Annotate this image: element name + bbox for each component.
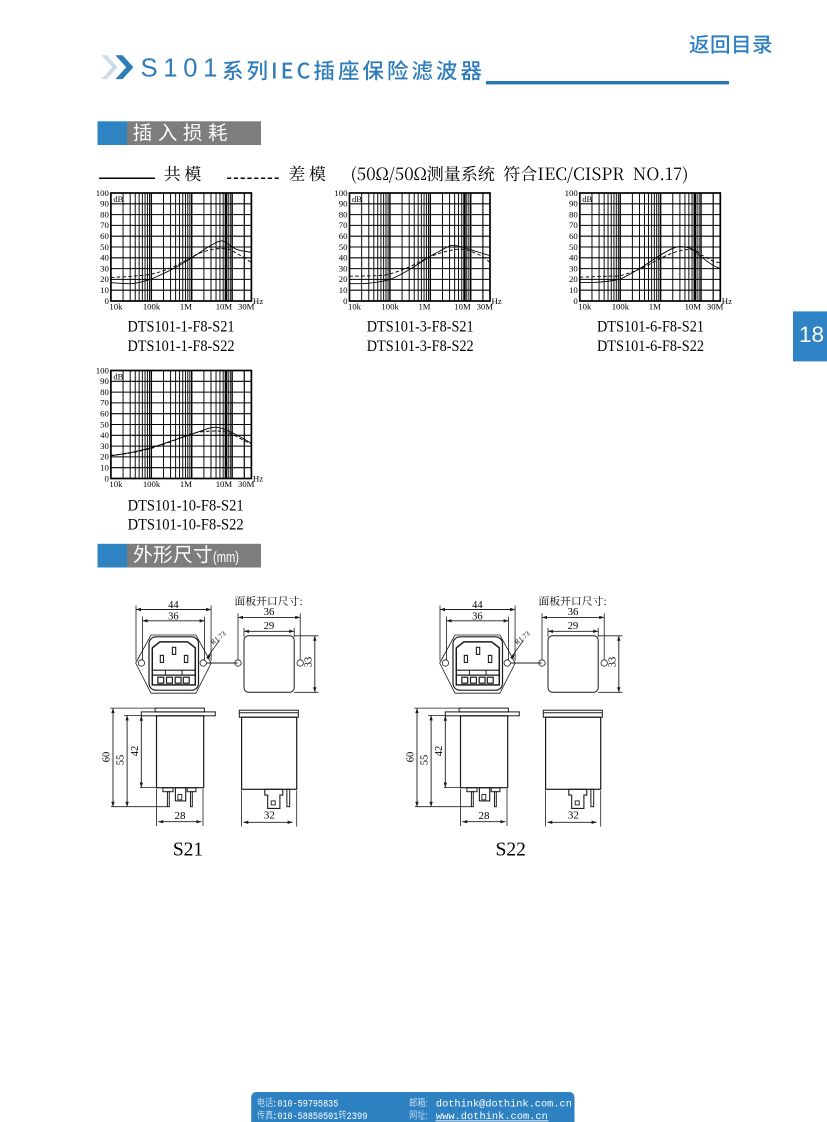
svg-text:10: 10 [339,285,348,295]
svg-text:32: 32 [264,809,275,821]
svg-text:29: 29 [264,621,275,632]
svg-text:100k: 100k [612,302,630,312]
svg-text:1M: 1M [180,479,192,489]
svg-text:(mm): (mm) [213,549,239,566]
svg-text:10M: 10M [454,302,471,312]
svg-text:44: 44 [472,600,483,611]
svg-text:10M: 10M [216,479,233,489]
svg-text:60: 60 [406,752,417,763]
svg-text:DTS101-1-F8-S22: DTS101-1-F8-S22 [128,338,235,355]
svg-text:dB: dB [113,194,123,204]
svg-text:20: 20 [100,274,109,284]
svg-text:42: 42 [130,746,141,757]
svg-text:18: 18 [799,322,824,347]
svg-text:20: 20 [569,274,578,284]
svg-text:20: 20 [339,274,348,284]
svg-text:80: 80 [100,387,109,397]
svg-text:S22: S22 [496,840,526,861]
svg-text:100k: 100k [381,302,399,312]
svg-text:50: 50 [339,242,348,252]
svg-text:DTS101-6-F8-S21: DTS101-6-F8-S21 [597,319,704,336]
svg-text:40: 40 [100,430,109,440]
svg-text:80: 80 [100,209,109,219]
svg-text:30: 30 [100,441,109,451]
svg-text:30: 30 [100,263,109,273]
svg-text:30: 30 [339,263,348,273]
svg-text:1M: 1M [418,302,430,312]
svg-text:90: 90 [339,199,348,209]
svg-text:DTS101-10-F8-S21: DTS101-10-F8-S21 [128,498,244,515]
svg-text:36: 36 [264,607,275,618]
svg-text:36: 36 [472,611,483,622]
svg-text:36: 36 [568,607,579,618]
svg-text:10k: 10k [348,302,362,312]
svg-text:10: 10 [100,285,109,295]
svg-text:10: 10 [569,285,578,295]
svg-text:Hz: Hz [492,296,502,306]
svg-text:10M: 10M [685,302,702,312]
svg-text:90: 90 [100,376,109,386]
svg-text:28: 28 [175,810,187,822]
svg-text:60: 60 [100,409,109,419]
svg-text:10k: 10k [578,302,592,312]
svg-text:R1.73: R1.73 [513,629,532,646]
svg-text:70: 70 [339,220,348,230]
svg-text:30: 30 [569,263,578,273]
svg-text:70: 70 [569,220,578,230]
svg-text:dB: dB [582,194,592,204]
svg-text:50: 50 [569,242,578,252]
svg-text:DTS101-1-F8-S21: DTS101-1-F8-S21 [128,319,235,336]
svg-text:Hz: Hz [253,474,263,484]
svg-text:55: 55 [116,755,127,766]
svg-text:10k: 10k [109,479,123,489]
svg-text:DTS101-6-F8-S22: DTS101-6-F8-S22 [597,338,704,355]
svg-text:80: 80 [339,209,348,219]
svg-text:60: 60 [569,231,578,241]
svg-text:www.dothink.com.cn: www.dothink.com.cn [436,1111,548,1122]
svg-text:33: 33 [608,657,619,668]
svg-text:60: 60 [102,752,113,763]
svg-text:90: 90 [569,199,578,209]
svg-text:100: 100 [96,365,110,375]
svg-text:40: 40 [339,253,348,263]
svg-text:dB: dB [113,372,123,382]
svg-text::010-58850501: :010-58850501 [272,1112,338,1122]
svg-text:42: 42 [434,746,445,757]
svg-text:90: 90 [100,199,109,209]
svg-text:33: 33 [304,657,315,668]
svg-text:40: 40 [569,253,578,263]
svg-text:2399: 2399 [347,1112,368,1122]
svg-text:DTS101-3-F8-S22: DTS101-3-F8-S22 [367,338,474,355]
svg-text:dB: dB [352,194,362,204]
svg-text:R1.73: R1.73 [209,629,228,646]
svg-text:40: 40 [100,253,109,263]
svg-text:100: 100 [565,188,579,198]
svg-text:100: 100 [96,188,110,198]
svg-text:28: 28 [479,810,491,822]
svg-text:dothink@dothink.com.cn: dothink@dothink.com.cn [436,1098,572,1110]
svg-text:S21: S21 [173,840,203,861]
svg-text:70: 70 [100,220,109,230]
svg-text:1M: 1M [180,302,192,312]
svg-text:29: 29 [568,621,579,632]
svg-text:100k: 100k [143,479,161,489]
svg-text:70: 70 [100,398,109,408]
svg-text:80: 80 [569,209,578,219]
svg-text:20: 20 [100,452,109,462]
svg-text:50: 50 [100,419,109,429]
svg-text:Hz: Hz [253,296,263,306]
svg-text:10k: 10k [109,302,123,312]
svg-text:55: 55 [420,755,431,766]
svg-text:100: 100 [334,188,348,198]
svg-text:10M: 10M [216,302,233,312]
svg-text:100k: 100k [143,302,161,312]
svg-text:1M: 1M [649,302,661,312]
svg-text:36: 36 [168,611,179,622]
svg-text:60: 60 [339,231,348,241]
svg-text:10: 10 [100,463,109,473]
svg-text:Hz: Hz [722,296,732,306]
svg-text:DTS101-3-F8-S21: DTS101-3-F8-S21 [367,319,474,336]
svg-text:60: 60 [100,231,109,241]
svg-text::010-59795835: :010-59795835 [272,1099,338,1110]
svg-text:DTS101-10-F8-S22: DTS101-10-F8-S22 [128,516,244,533]
svg-text:S101: S101 [141,54,224,82]
svg-text:50: 50 [100,242,109,252]
svg-text:44: 44 [168,600,179,611]
svg-text:32: 32 [568,809,579,821]
